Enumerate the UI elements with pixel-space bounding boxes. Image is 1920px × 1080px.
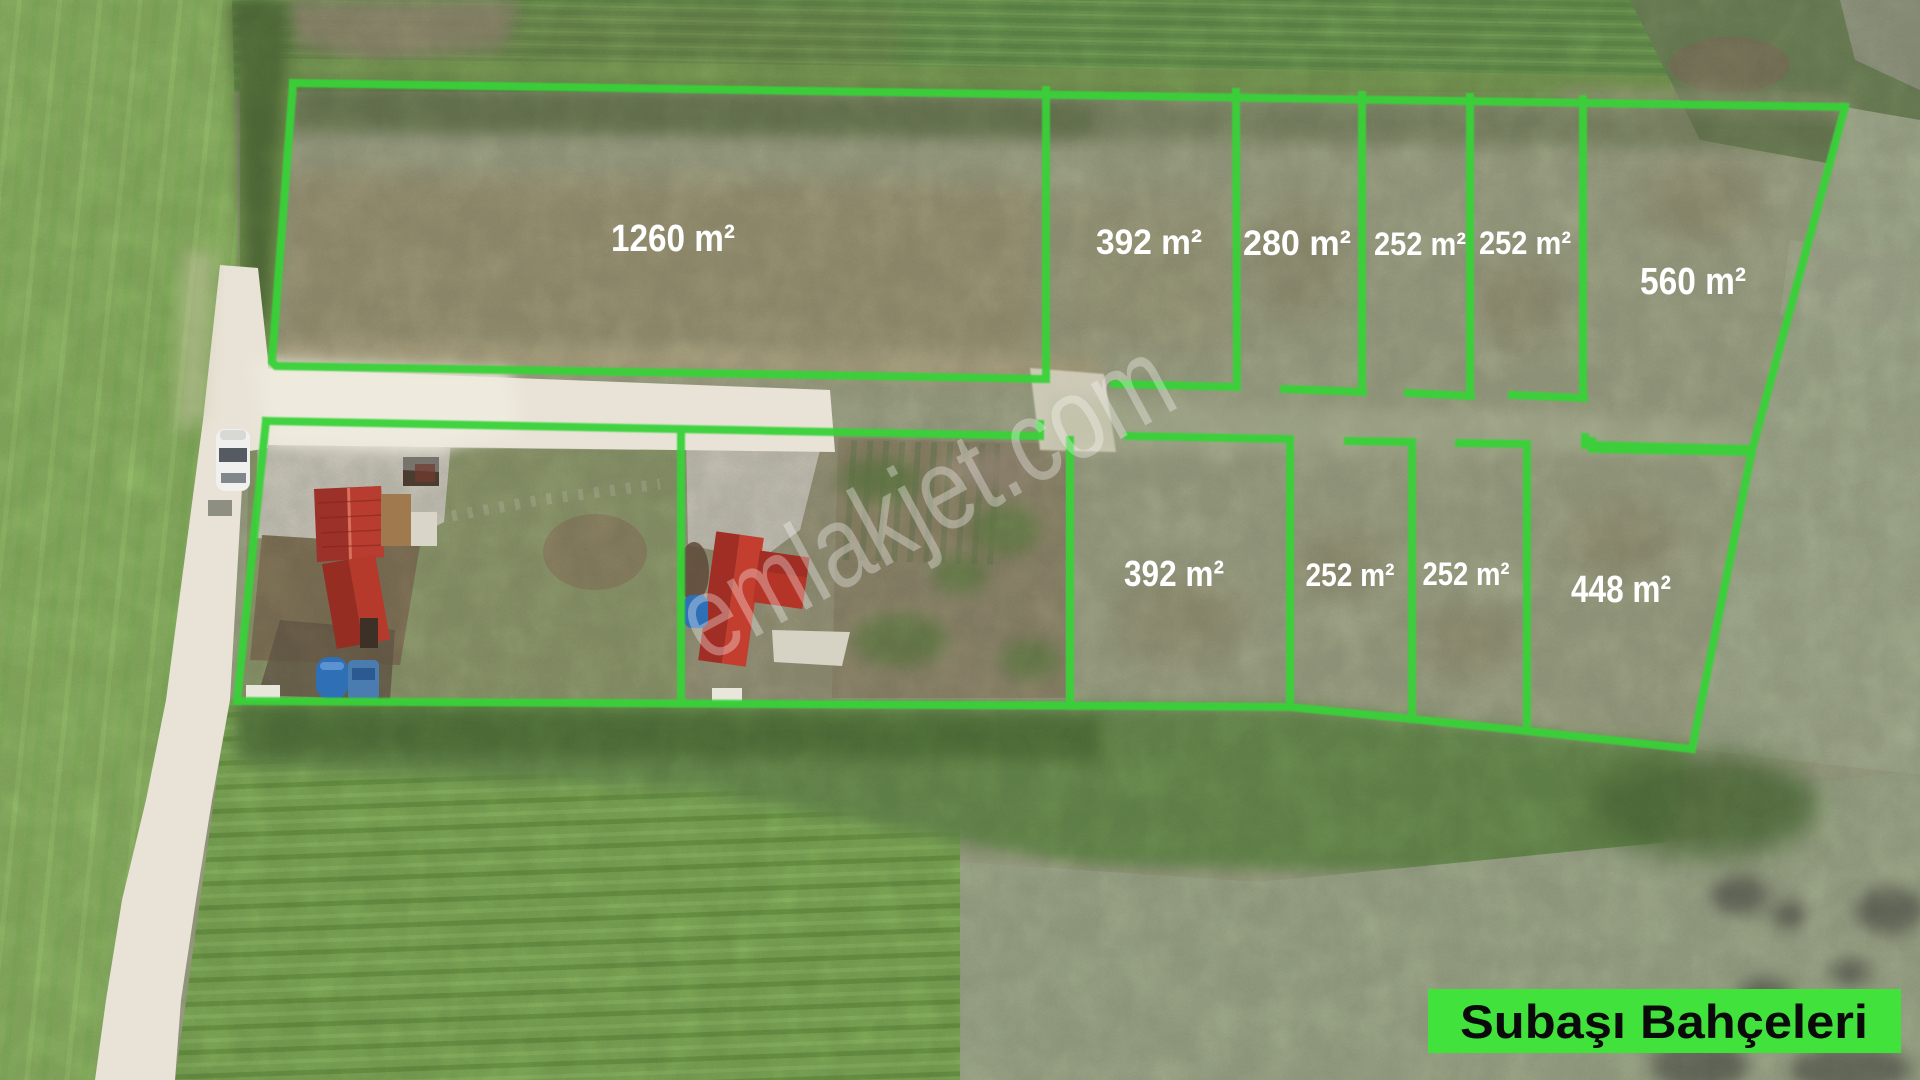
svg-text:392 m²: 392 m² xyxy=(1124,553,1224,594)
svg-text:560 m²: 560 m² xyxy=(1640,261,1746,303)
svg-text:392 m²: 392 m² xyxy=(1096,223,1202,262)
svg-text:252 m²: 252 m² xyxy=(1423,556,1510,592)
svg-text:252 m²: 252 m² xyxy=(1306,557,1395,593)
svg-text:1260 m²: 1260 m² xyxy=(611,218,735,260)
svg-text:448 m²: 448 m² xyxy=(1571,569,1671,611)
svg-text:280 m²: 280 m² xyxy=(1243,224,1351,263)
svg-text:252 m²: 252 m² xyxy=(1479,225,1571,261)
svg-text:252 m²: 252 m² xyxy=(1374,226,1466,262)
svg-text:Subaşı Bahçeleri: Subaşı Bahçeleri xyxy=(1460,995,1868,1048)
